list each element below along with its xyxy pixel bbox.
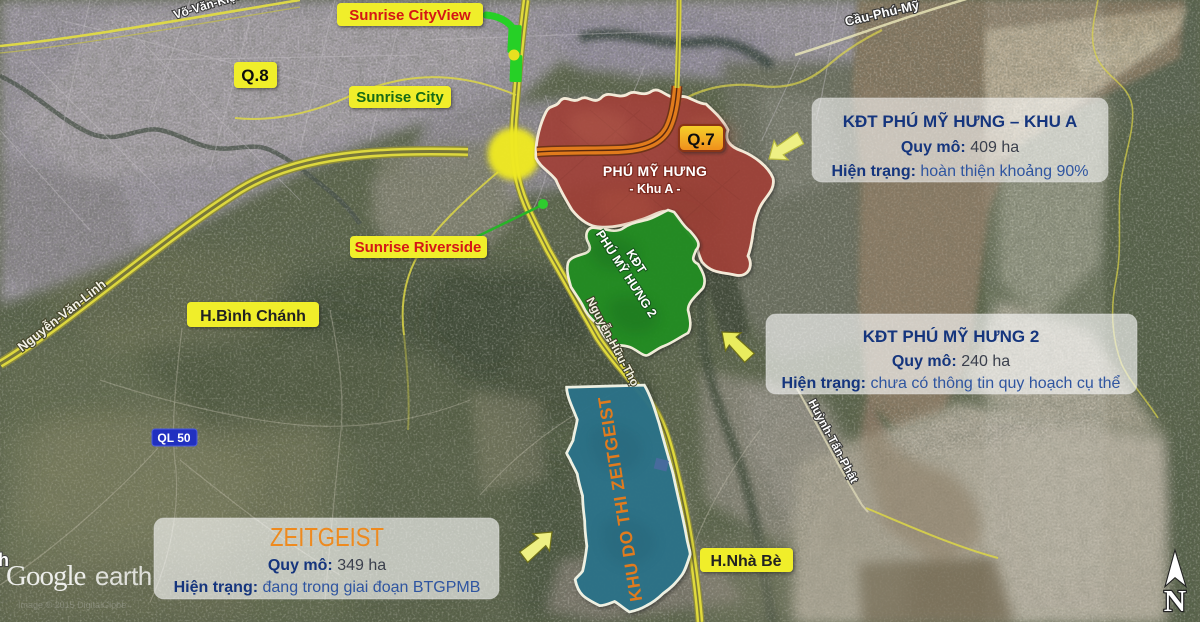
svg-text:- Khu A -: - Khu A - <box>629 182 680 196</box>
svg-text:Hiện trạng: chưa có thông tin: Hiện trạng: chưa có thông tin quy hoạch … <box>782 374 1121 392</box>
svg-text:Hiện trạng: hoàn thiện khoảng: Hiện trạng: hoàn thiện khoảng 90% <box>831 163 1088 180</box>
svg-text:ZEITGEIST: ZEITGEIST <box>270 522 384 552</box>
svg-text:Sunrise Riverside: Sunrise Riverside <box>355 239 482 256</box>
svg-text:Sunrise City: Sunrise City <box>356 89 444 106</box>
svg-text:Hiện trạng: đang trong giai đo: Hiện trạng: đang trong giai đoạn BTGPMB <box>174 579 481 596</box>
svg-text:Q.8: Q.8 <box>241 66 268 85</box>
svg-text:PHÚ MỸ HƯNG: PHÚ MỸ HƯNG <box>603 162 707 179</box>
svg-text:Sunrise CityView: Sunrise CityView <box>349 7 471 24</box>
svg-text:N: N <box>1164 583 1186 618</box>
svg-text:Quy mô: 349 ha: Quy mô: 349 ha <box>268 557 386 574</box>
svg-text:KĐT PHÚ MỸ HƯNG – KHU A: KĐT PHÚ MỸ HƯNG – KHU A <box>843 111 1077 131</box>
svg-text:Image © 2015 DigitalGlobe: Image © 2015 DigitalGlobe <box>18 600 126 610</box>
svg-text:Quy mô: 240 ha: Quy mô: 240 ha <box>892 353 1010 370</box>
svg-text:Google: Google <box>6 560 86 592</box>
svg-text:QL 50: QL 50 <box>157 431 190 445</box>
svg-text:Quy mô: 409 ha: Quy mô: 409 ha <box>901 139 1019 156</box>
svg-text:H.Nhà Bè: H.Nhà Bè <box>710 553 781 570</box>
svg-text:earth: earth <box>95 561 152 591</box>
svg-text:H.Bình Chánh: H.Bình Chánh <box>200 308 306 325</box>
svg-text:Q.7: Q.7 <box>687 130 714 149</box>
svg-text:KĐT PHÚ MỸ HƯNG 2: KĐT PHÚ MỸ HƯNG 2 <box>863 326 1040 346</box>
